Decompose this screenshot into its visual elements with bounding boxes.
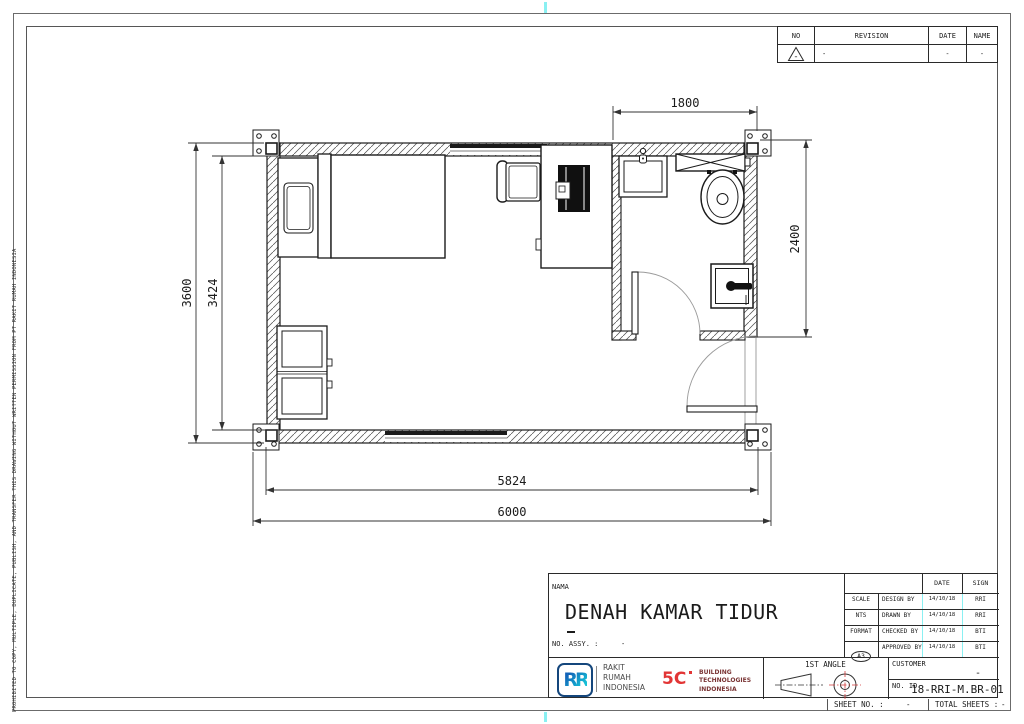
revision-col-date: DATE xyxy=(928,27,966,45)
revision-value: - xyxy=(814,45,928,62)
rri-name-line: RUMAH xyxy=(603,673,645,683)
revision-marker-cell: - xyxy=(778,45,814,62)
first-angle-projection-icon xyxy=(773,671,878,699)
fold-mark-top xyxy=(544,2,547,13)
projection-label: 1ST ANGLE xyxy=(763,660,888,669)
approval-date: 14/10/18 xyxy=(922,596,962,602)
total-sheets-value: - xyxy=(1001,700,1006,709)
revision-col-revision: REVISION xyxy=(814,27,928,45)
format-label: FORMAT xyxy=(844,628,878,635)
strip-divider xyxy=(827,699,828,711)
bti-name-line: BUILDING xyxy=(699,669,751,677)
approval-sign: RRI xyxy=(962,612,999,619)
approval-label: DRAWN BY xyxy=(882,612,911,619)
divider xyxy=(844,641,999,642)
title-underline xyxy=(567,631,575,633)
bti-name-line: TECHNOLOGIES xyxy=(699,677,751,685)
date-header: DATE xyxy=(922,579,962,587)
divider xyxy=(888,679,999,680)
fold-mark-bottom xyxy=(544,712,547,722)
approval-sign: BTI xyxy=(962,644,999,651)
approval-date: 14/10/18 xyxy=(922,628,962,634)
divider xyxy=(844,593,999,594)
customer-value: - xyxy=(975,668,981,679)
divider xyxy=(888,657,889,699)
bti-name-line: INDONESIA xyxy=(699,686,751,694)
scale-label: SCALE xyxy=(844,596,878,603)
sign-header: SIGN xyxy=(962,579,999,587)
rri-name-line: INDONESIA xyxy=(603,683,645,693)
approval-sign: BTI xyxy=(962,628,999,635)
revision-name-value: - xyxy=(966,45,997,62)
revision-col-name: NAME xyxy=(966,27,997,45)
divider xyxy=(844,609,999,610)
revision-triangle-icon: - xyxy=(787,46,805,62)
sheet-no-value: - xyxy=(906,700,911,709)
copyright-notice: PROHIBITED TO COPY, MULTIPLE, DUPLICATE,… xyxy=(12,230,25,712)
sheet-no-label: SHEET NO. : xyxy=(834,700,884,709)
approval-label: DESIGN BY xyxy=(882,596,915,603)
logo-separator xyxy=(596,666,597,692)
scale-value: NTS xyxy=(844,612,878,619)
bti-logo-icon: 5C xyxy=(662,669,686,689)
revision-col-no: NO xyxy=(778,27,814,45)
revision-table: NO REVISION DATE NAME - - - - xyxy=(777,26,998,63)
bti-company-name: BUILDING TECHNOLOGIES INDONESIA xyxy=(699,669,751,694)
no-id-value: 18-RRI-M.BR-01 xyxy=(911,683,997,696)
approval-sign: RRI xyxy=(962,596,999,603)
no-assy-value: - xyxy=(621,640,625,648)
divider xyxy=(844,625,999,626)
bti-logo-dot xyxy=(689,671,692,674)
approval-label: APPROVED BY xyxy=(882,644,922,651)
svg-text:-: - xyxy=(793,52,798,62)
drawing-sheet: 1800 2400 3600 xyxy=(0,0,1024,724)
revision-date-value: - xyxy=(928,45,966,62)
no-assy-label: NO. ASSY. : xyxy=(552,640,598,648)
approval-label: CHECKED BY xyxy=(882,628,918,635)
rri-logo-icon: RR xyxy=(557,663,593,697)
divider xyxy=(549,657,999,658)
approval-date: 14/10/18 xyxy=(922,612,962,618)
total-sheets-label: TOTAL SHEETS : xyxy=(935,700,998,709)
customer-label: CUSTOMER xyxy=(892,660,926,668)
title-block: NAMA DENAH KAMAR TIDUR NO. ASSY. : - DAT… xyxy=(548,573,998,698)
rri-name-line: RAKIT xyxy=(603,663,645,673)
strip-divider xyxy=(928,699,929,711)
rri-company-name: RAKIT RUMAH INDONESIA xyxy=(603,663,645,693)
approval-date: 14/10/18 xyxy=(922,644,962,650)
nama-label: NAMA xyxy=(552,583,569,591)
drawing-title: DENAH KAMAR TIDUR xyxy=(565,600,778,624)
